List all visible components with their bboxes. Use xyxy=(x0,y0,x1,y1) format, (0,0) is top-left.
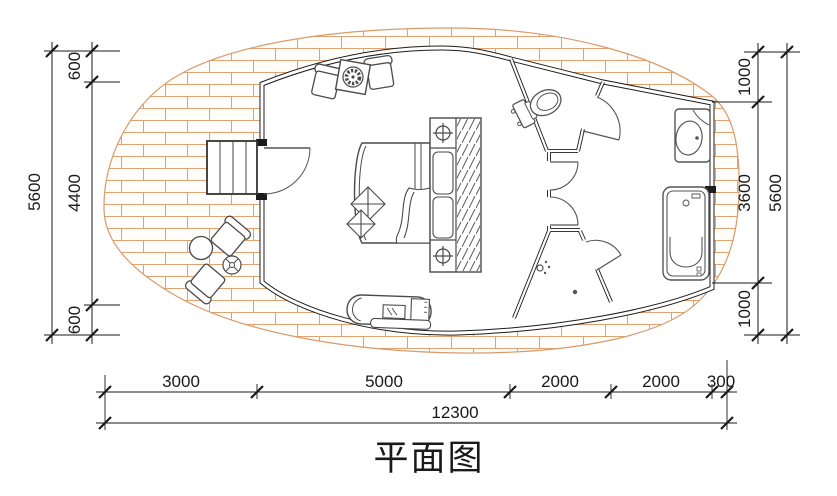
wardrobe-hangers xyxy=(457,119,480,271)
floor-plan-page: 5600 600 4400 600 1000 3600 1000 5600 30… xyxy=(0,0,837,496)
drain xyxy=(683,200,689,206)
soundbar xyxy=(370,318,430,329)
floor-plan-canvas: 5600 600 4400 600 1000 3600 1000 5600 30… xyxy=(0,0,837,496)
dim-right-overall: 5600 xyxy=(766,174,785,212)
dim-right-seg-1: 3600 xyxy=(735,174,754,212)
dim-left-seg-2: 600 xyxy=(65,306,84,334)
dim-right-seg-2: 1000 xyxy=(735,290,754,328)
dim-right-seg-0: 1000 xyxy=(735,58,754,96)
tub-faucet xyxy=(692,194,700,198)
dim-left-seg-0: 600 xyxy=(65,52,84,80)
floor-drain-icon xyxy=(573,290,577,294)
entry-stairs xyxy=(207,141,257,194)
deck-round-table xyxy=(190,237,213,260)
dim-bottom-seg-4: 300 xyxy=(707,372,735,391)
dim-bottom-seg-1: 5000 xyxy=(365,372,403,391)
dim-bottom-seg-2: 2000 xyxy=(541,372,579,391)
dim-left-seg-1: 4400 xyxy=(65,174,84,212)
deck-side-table xyxy=(223,256,241,274)
dim-left-overall: 5600 xyxy=(25,173,44,211)
washbasin xyxy=(674,109,710,162)
bathtub xyxy=(663,187,709,280)
side-table xyxy=(336,60,371,95)
faucet-dot xyxy=(695,136,699,140)
bed xyxy=(347,143,430,243)
dim-bottom-seg-0: 3000 xyxy=(162,372,200,391)
tv-console xyxy=(346,295,431,330)
drawing-title: 平面图 xyxy=(373,439,484,478)
headboard-unit xyxy=(430,118,481,272)
dim-bottom-overall: 12300 xyxy=(431,403,478,422)
dim-bottom-seg-3: 2000 xyxy=(642,372,680,391)
